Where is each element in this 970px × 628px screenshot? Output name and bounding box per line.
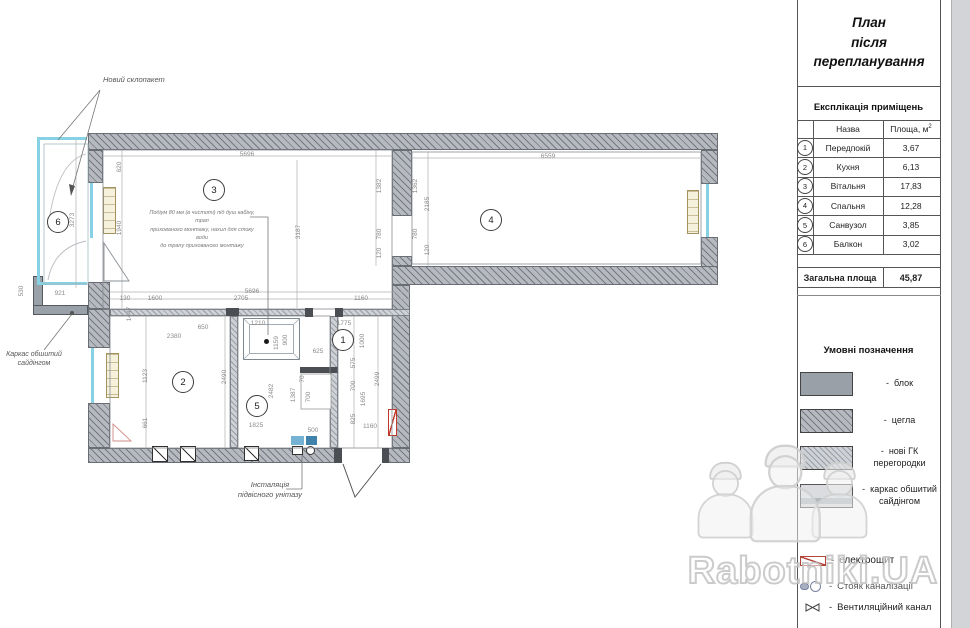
dimension-label: 3187 bbox=[296, 225, 303, 239]
room-area-cell: 12,28 bbox=[900, 201, 921, 211]
dimension-label: 2705 bbox=[234, 296, 248, 303]
wall-right-upper bbox=[701, 150, 718, 184]
radiator-kitchen bbox=[106, 353, 119, 398]
legend-item-siding: - каркас обшитий сайдінгом bbox=[800, 484, 940, 508]
siding-note: Каркас обшитий сайдінгом bbox=[2, 350, 66, 369]
balcony-glazing-top bbox=[37, 137, 87, 140]
dimension-label: 1447 bbox=[127, 307, 134, 321]
panel-left-border bbox=[797, 0, 798, 628]
dimension-label: 1775 bbox=[337, 321, 351, 328]
dimension-label: 780 bbox=[377, 229, 384, 240]
shower-drain-icon bbox=[264, 339, 269, 344]
partition-kitchen-top bbox=[110, 309, 313, 316]
table-line bbox=[797, 138, 941, 139]
row-number-circle: 6 bbox=[797, 236, 813, 252]
dimension-label: 1382 bbox=[377, 179, 384, 193]
dimension-label: 575 bbox=[351, 358, 358, 369]
table-line bbox=[797, 215, 941, 216]
dash: - bbox=[829, 581, 832, 592]
room-area-cell: 3,67 bbox=[903, 143, 920, 153]
dimension-label: 625 bbox=[313, 349, 324, 356]
window-bedroom bbox=[706, 184, 709, 237]
dimension-label: 661 bbox=[143, 418, 150, 429]
dimension-label: 530 bbox=[19, 286, 26, 297]
radiator-bedroom bbox=[687, 190, 699, 234]
section-divider bbox=[797, 295, 941, 296]
balcony-glazing-bottom bbox=[37, 282, 87, 285]
dash: - bbox=[831, 555, 834, 566]
legend-label: - цегла bbox=[859, 415, 940, 427]
dimension-label: 900 bbox=[283, 335, 290, 346]
dimension-label: 1940 bbox=[117, 221, 124, 235]
brick-swatch bbox=[800, 409, 853, 433]
dimension-label: 780 bbox=[413, 229, 420, 240]
legend-label: Стояк каналізації bbox=[837, 581, 913, 592]
wall-bottom-left bbox=[88, 448, 342, 463]
wall-left-mid bbox=[88, 282, 110, 309]
dimension-label: 1600 bbox=[148, 296, 162, 303]
dimension-label: 1825 bbox=[249, 423, 263, 430]
dimension-label: 2490 bbox=[222, 370, 229, 384]
dimension-label: 1387 bbox=[291, 388, 298, 402]
toilet-tank-icon bbox=[291, 436, 304, 445]
toilet-frame-icon bbox=[292, 446, 303, 455]
col-header-name: Назва bbox=[836, 124, 860, 134]
dimension-label: 130 bbox=[120, 296, 131, 303]
row-number-circle: 3 bbox=[797, 178, 813, 194]
dimension-label: 700 bbox=[351, 381, 358, 392]
dimension-label: 700 bbox=[306, 392, 313, 403]
wall-divider-upper bbox=[392, 150, 412, 216]
toilet-note: Інсталяція підвісного унітазу bbox=[210, 480, 330, 500]
niche-lintel bbox=[300, 367, 338, 373]
legend-item-vent: - Вентиляційний канал bbox=[800, 602, 943, 613]
wall-divider-lower bbox=[392, 256, 412, 266]
room-name-cell: Вітальня bbox=[831, 181, 866, 191]
toilet-valve-icon bbox=[306, 436, 317, 445]
window-livingroom bbox=[90, 183, 93, 238]
room-area-cell: 6,13 bbox=[903, 162, 920, 172]
room-number-1: 1 bbox=[332, 329, 354, 351]
room-number-2: 2 bbox=[172, 371, 194, 393]
vent-channel-icon bbox=[800, 603, 824, 613]
dimension-label: 1000 bbox=[360, 334, 367, 348]
dimension-label: 70 bbox=[300, 375, 307, 382]
legend-item-sewer: - Стояк каналізації bbox=[800, 580, 943, 593]
dimension-label: 620 bbox=[117, 162, 124, 173]
explication-heading: Експлікація приміщень bbox=[797, 102, 940, 113]
legend-label: Вентиляційний канал bbox=[837, 602, 931, 613]
electro-panel-icon bbox=[388, 409, 397, 436]
dimension-label: 1159 bbox=[274, 336, 281, 350]
dimension-label: 5696 bbox=[240, 152, 254, 159]
podium-note: Подіум 80 мм (в чистоті) під душ кабіну,… bbox=[148, 209, 256, 250]
dimension-label: 650 bbox=[198, 325, 209, 332]
sewer-riser-icon bbox=[800, 580, 824, 593]
dimension-label: 1160 bbox=[363, 424, 377, 431]
legend-label: - каркас обшитий сайдінгом bbox=[859, 484, 940, 507]
gk-swatch bbox=[800, 446, 853, 470]
room-area-cell: 3,85 bbox=[903, 220, 920, 230]
room-number-6: 6 bbox=[47, 211, 69, 233]
table-line bbox=[797, 157, 941, 158]
dimension-label: 1210 bbox=[251, 321, 265, 328]
dimension-label: 2185 bbox=[425, 197, 432, 211]
toilet-bowl-icon bbox=[306, 446, 315, 455]
window-kitchen bbox=[91, 348, 94, 403]
table-line bbox=[797, 254, 941, 255]
legend-label: - блок bbox=[859, 378, 940, 390]
total-value: 45,87 bbox=[900, 273, 923, 283]
row-number-circle: 4 bbox=[797, 198, 813, 214]
wall-wing-bottom bbox=[392, 266, 718, 285]
legend-item-gk-partitions: - нові ГК перегородки bbox=[800, 446, 940, 470]
siding-swatch bbox=[800, 484, 853, 508]
room-area-cell: 17,83 bbox=[900, 181, 921, 191]
wall-left-kitchen-lower bbox=[88, 403, 110, 448]
drawing-page: Новий склопакет Каркас обшитий сайдінгом… bbox=[0, 0, 970, 628]
block-swatch bbox=[800, 372, 853, 396]
wall-left-top bbox=[88, 150, 103, 183]
table-line bbox=[883, 120, 884, 254]
panel-title: План після перепланування bbox=[799, 13, 939, 72]
table-line bbox=[797, 235, 941, 236]
legend-item-brick: - цегла bbox=[800, 409, 940, 433]
siding-frame-horizontal bbox=[33, 305, 88, 315]
row-number-circle: 5 bbox=[797, 217, 813, 233]
wall-bottom-right bbox=[382, 448, 410, 463]
row-number-circle: 2 bbox=[797, 159, 813, 175]
dimension-label: 2380 bbox=[167, 334, 181, 341]
dimension-label: 2499 bbox=[375, 372, 382, 386]
legend-item-block: - блок bbox=[800, 372, 940, 396]
dimension-label: 6559 bbox=[541, 154, 555, 161]
title-divider bbox=[797, 86, 941, 87]
dimension-label: 825 bbox=[351, 414, 358, 425]
dimension-label: 1362 bbox=[413, 179, 420, 193]
legend-label: електрощит bbox=[839, 555, 894, 566]
room-number-5: 5 bbox=[246, 395, 268, 417]
dash: - bbox=[829, 602, 832, 613]
electro-panel-icon bbox=[800, 556, 826, 566]
dimension-label: 921 bbox=[55, 291, 66, 298]
room-number-4: 4 bbox=[480, 209, 502, 231]
dimension-label: 1160 bbox=[354, 296, 368, 303]
legend-item-electro: - електрощит bbox=[800, 555, 943, 566]
wall-top bbox=[88, 133, 718, 150]
room-name-cell: Спальня bbox=[831, 201, 865, 211]
room-name-cell: Балкон bbox=[834, 239, 863, 249]
room-number-3: 3 bbox=[203, 179, 225, 201]
partition-kitchen-bath bbox=[230, 316, 238, 448]
room-area-cell: 3,02 bbox=[903, 239, 920, 249]
table-line bbox=[797, 177, 941, 178]
dimension-label: 120 bbox=[377, 248, 384, 259]
table-line bbox=[813, 120, 814, 254]
dimension-label: 120 bbox=[425, 245, 432, 256]
page-gutter bbox=[951, 0, 970, 628]
room-name-cell: Кухня bbox=[837, 162, 860, 172]
room-name-cell: Санвузол bbox=[829, 220, 867, 230]
total-label: Загальна площа bbox=[804, 273, 877, 283]
vent-box-icon bbox=[180, 446, 196, 462]
dimension-label: 2482 bbox=[269, 384, 276, 398]
col-header-area: Площа, м2 bbox=[890, 124, 932, 134]
vent-box-icon bbox=[152, 446, 168, 462]
dimension-label: 3273 bbox=[70, 213, 77, 227]
dimension-label: 500 bbox=[308, 428, 319, 435]
panel-right-border bbox=[940, 0, 941, 628]
table-line bbox=[797, 196, 941, 197]
partition-hall-top bbox=[335, 309, 410, 316]
balcony-glazing-left bbox=[37, 137, 40, 285]
row-number-circle: 1 bbox=[797, 140, 813, 156]
wall-left-kitchen-upper bbox=[88, 309, 110, 348]
radiator-livingroom bbox=[103, 187, 116, 234]
legend-heading: Умовні позначення bbox=[797, 345, 940, 356]
legend-label: - нові ГК перегородки bbox=[859, 446, 940, 469]
dimension-label: 1123 bbox=[143, 369, 150, 383]
room-name-cell: Передпокій bbox=[826, 143, 871, 153]
table-line bbox=[797, 120, 941, 121]
vent-box-icon bbox=[244, 446, 259, 461]
glazing-note: Новий склопакет bbox=[103, 75, 165, 85]
dimension-label: 1695 bbox=[361, 392, 368, 406]
